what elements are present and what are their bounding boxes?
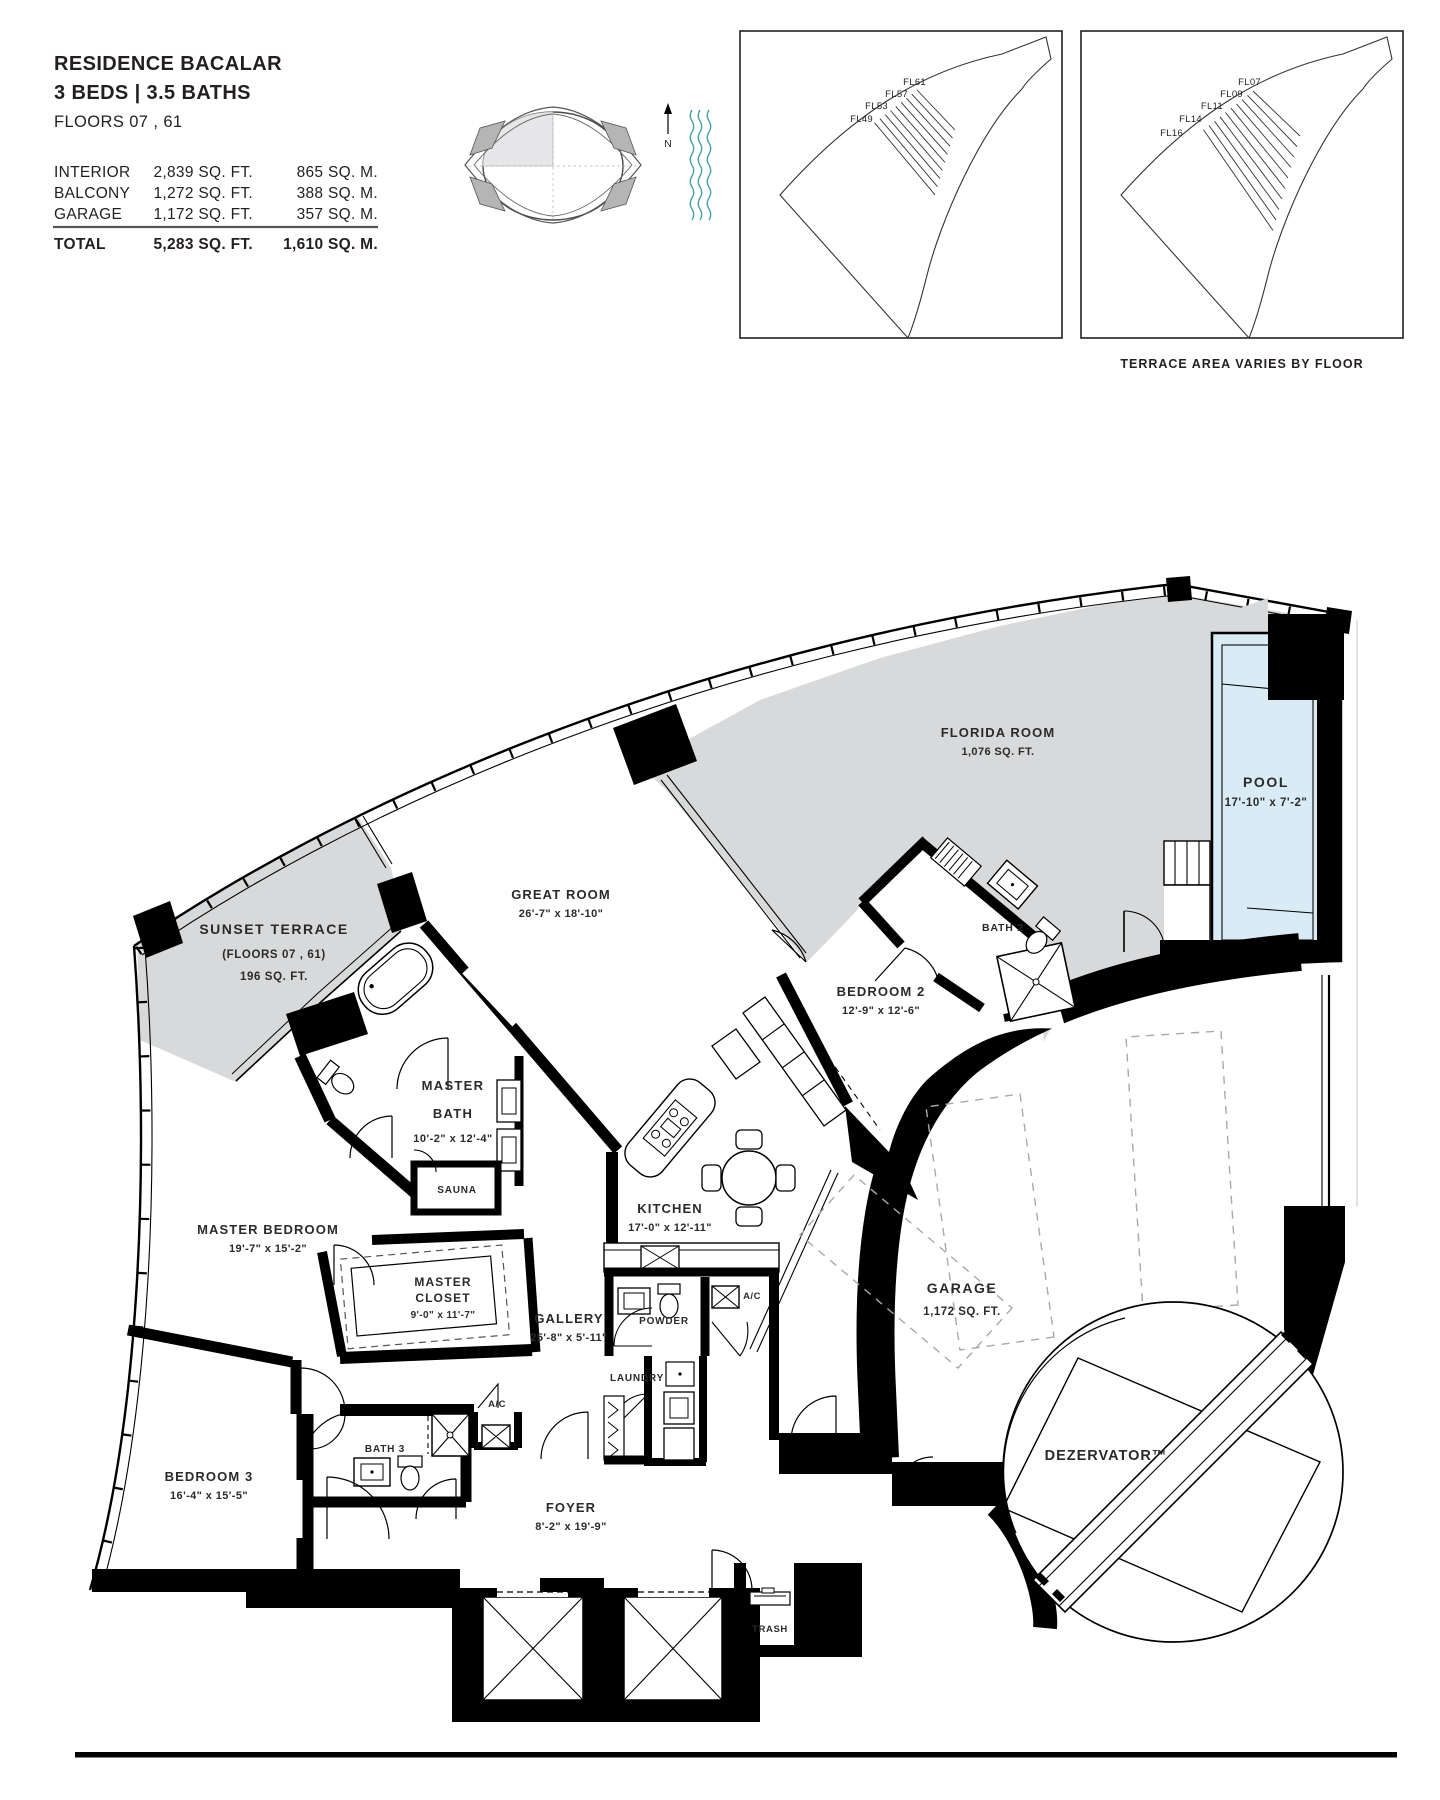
svg-text:19'-7" x 15'-2": 19'-7" x 15'-2" [229, 1243, 307, 1255]
svg-text:FL49: FL49 [850, 114, 873, 125]
svg-text:BEDROOM 3: BEDROOM 3 [165, 1469, 254, 1484]
svg-text:A/C: A/C [488, 1399, 506, 1410]
svg-text:1,172 SQ. FT.: 1,172 SQ. FT. [153, 206, 253, 223]
svg-text:FL11: FL11 [1201, 101, 1223, 112]
svg-text:FL07: FL07 [1238, 77, 1261, 88]
svg-text:1,272 SQ. FT.: 1,272 SQ. FT. [153, 185, 253, 202]
svg-text:FL53: FL53 [865, 101, 888, 112]
svg-text:9'-0" x 11'-7": 9'-0" x 11'-7" [411, 1310, 476, 1321]
svg-text:GREAT ROOM: GREAT ROOM [511, 887, 611, 902]
svg-text:17'-0" x 12'-11": 17'-0" x 12'-11" [628, 1222, 712, 1234]
svg-text:17'-10" x 7'-2": 17'-10" x 7'-2" [1225, 797, 1308, 809]
svg-text:MASTER BEDROOM: MASTER BEDROOM [197, 1222, 339, 1237]
svg-text:1,610 SQ. M.: 1,610 SQ. M. [283, 236, 378, 253]
svg-text:12'-9" x 12'-6": 12'-9" x 12'-6" [842, 1005, 920, 1017]
svg-text:(FLOORS 07 , 61): (FLOORS 07 , 61) [222, 949, 326, 961]
svg-text:KITCHEN: KITCHEN [637, 1201, 702, 1216]
svg-text:25'-8" x 5'-11": 25'-8" x 5'-11" [530, 1332, 607, 1344]
svg-text:SUNSET TERRACE: SUNSET TERRACE [199, 921, 348, 937]
svg-text:A/C: A/C [743, 1291, 761, 1302]
svg-text:SAUNA: SAUNA [437, 1185, 477, 1196]
svg-text:388 SQ. M.: 388 SQ. M. [297, 185, 378, 202]
svg-text:MASTER: MASTER [422, 1078, 485, 1093]
svg-text:GARAGE: GARAGE [927, 1280, 997, 1296]
svg-text:8'-2" x 19'-9": 8'-2" x 19'-9" [535, 1521, 606, 1533]
svg-text:2,839 SQ. FT.: 2,839 SQ. FT. [153, 164, 253, 181]
svg-text:BEDROOM 2: BEDROOM 2 [837, 984, 926, 999]
svg-text:FL16: FL16 [1160, 128, 1183, 139]
svg-text:FL57: FL57 [885, 89, 908, 100]
svg-text:5,283 SQ. FT.: 5,283 SQ. FT. [153, 236, 253, 253]
svg-text:26'-7" x 18'-10": 26'-7" x 18'-10" [519, 908, 603, 920]
svg-text:MASTER: MASTER [414, 1275, 471, 1289]
svg-text:FLOORS 07 , 61: FLOORS 07 , 61 [54, 113, 183, 131]
svg-text:LAUNDRY: LAUNDRY [610, 1373, 664, 1384]
svg-text:357 SQ. M.: 357 SQ. M. [297, 206, 378, 223]
svg-text:BATH 3: BATH 3 [365, 1444, 405, 1455]
svg-text:FL14: FL14 [1179, 114, 1202, 125]
svg-text:TOTAL: TOTAL [54, 236, 106, 253]
svg-text:RESIDENCE BACALAR: RESIDENCE BACALAR [54, 53, 282, 75]
svg-text:16'-4" x 15'-5": 16'-4" x 15'-5" [170, 1490, 248, 1502]
svg-text:1,172 SQ. FT.: 1,172 SQ. FT. [923, 1306, 1000, 1318]
svg-text:INTERIOR: INTERIOR [54, 164, 130, 181]
svg-text:3 BEDS | 3.5 BATHS: 3 BEDS | 3.5 BATHS [54, 82, 251, 104]
svg-text:TERRACE AREA VARIES BY FLOOR: TERRACE AREA VARIES BY FLOOR [1120, 357, 1363, 371]
svg-text:FOYER: FOYER [546, 1500, 596, 1515]
svg-text:TRASH: TRASH [752, 1624, 788, 1635]
svg-text:POOL: POOL [1243, 774, 1289, 790]
svg-text:FL61: FL61 [903, 77, 926, 88]
svg-text:CLOSET: CLOSET [415, 1291, 470, 1305]
svg-text:FL09: FL09 [1220, 89, 1243, 100]
svg-text:GALLERY: GALLERY [534, 1311, 603, 1326]
svg-text:GARAGE: GARAGE [54, 206, 122, 223]
svg-text:DEZERVATOR™: DEZERVATOR™ [1045, 1448, 1168, 1464]
svg-text:1,076 SQ. FT.: 1,076 SQ. FT. [961, 746, 1034, 758]
svg-text:BATH 2: BATH 2 [982, 922, 1024, 934]
svg-text:POWDER: POWDER [639, 1316, 689, 1327]
svg-text:BATH: BATH [433, 1106, 473, 1121]
svg-text:10'-2" x 12'-4": 10'-2" x 12'-4" [413, 1133, 492, 1145]
svg-text:FLORIDA ROOM: FLORIDA ROOM [941, 725, 1056, 740]
svg-text:865 SQ. M.: 865 SQ. M. [297, 164, 378, 181]
svg-text:N: N [664, 138, 672, 150]
svg-text:196 SQ. FT.: 196 SQ. FT. [240, 971, 308, 983]
svg-text:BALCONY: BALCONY [54, 185, 130, 202]
